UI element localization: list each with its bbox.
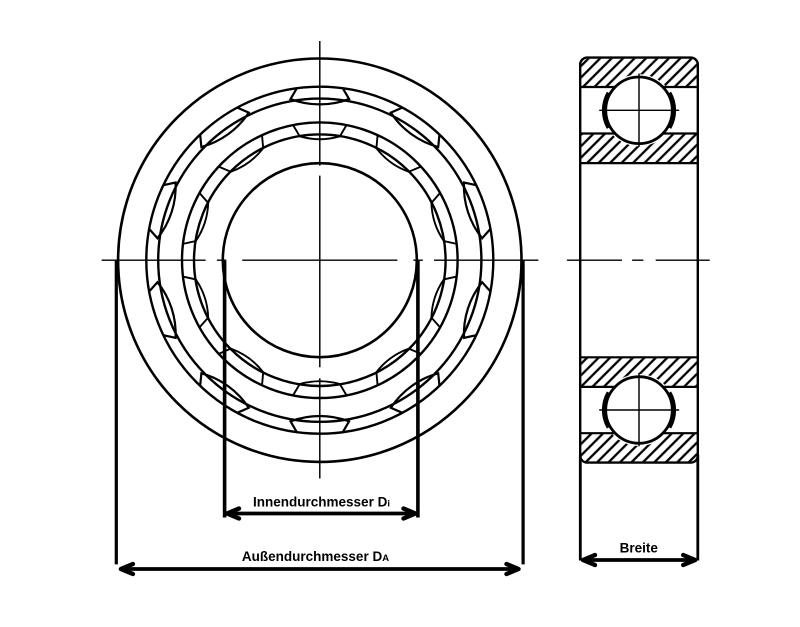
svg-text:Außendurchmesser DA: Außendurchmesser DA [242,549,389,564]
svg-text:Breite: Breite [620,540,659,555]
svg-text:Innendurchmesser Di: Innendurchmesser Di [253,495,390,510]
